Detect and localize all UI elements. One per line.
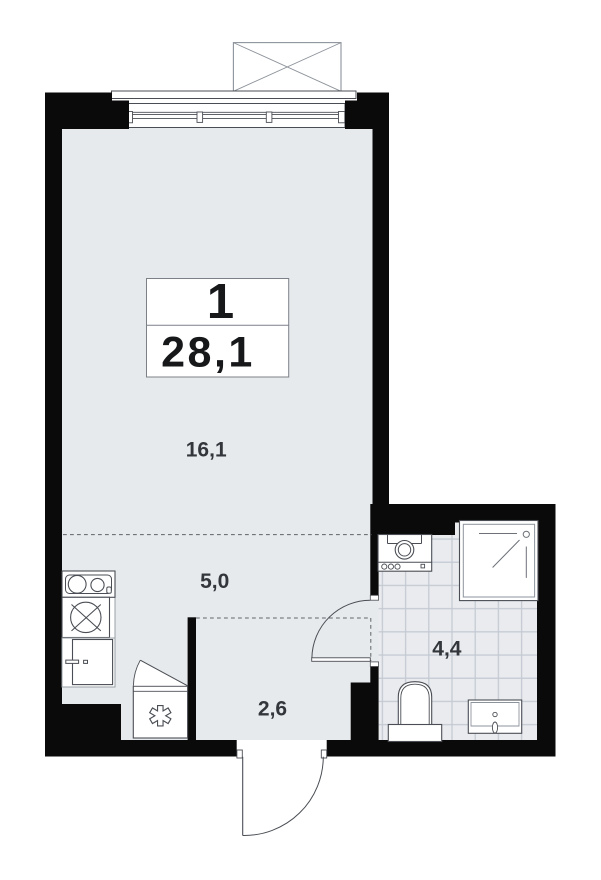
svg-text:2,6: 2,6	[258, 698, 287, 721]
svg-text:4,4: 4,4	[432, 638, 462, 661]
svg-text:16,1: 16,1	[186, 439, 227, 462]
svg-text:1: 1	[207, 275, 234, 329]
svg-text:5,0: 5,0	[200, 570, 229, 593]
svg-text:28,1: 28,1	[161, 328, 255, 376]
